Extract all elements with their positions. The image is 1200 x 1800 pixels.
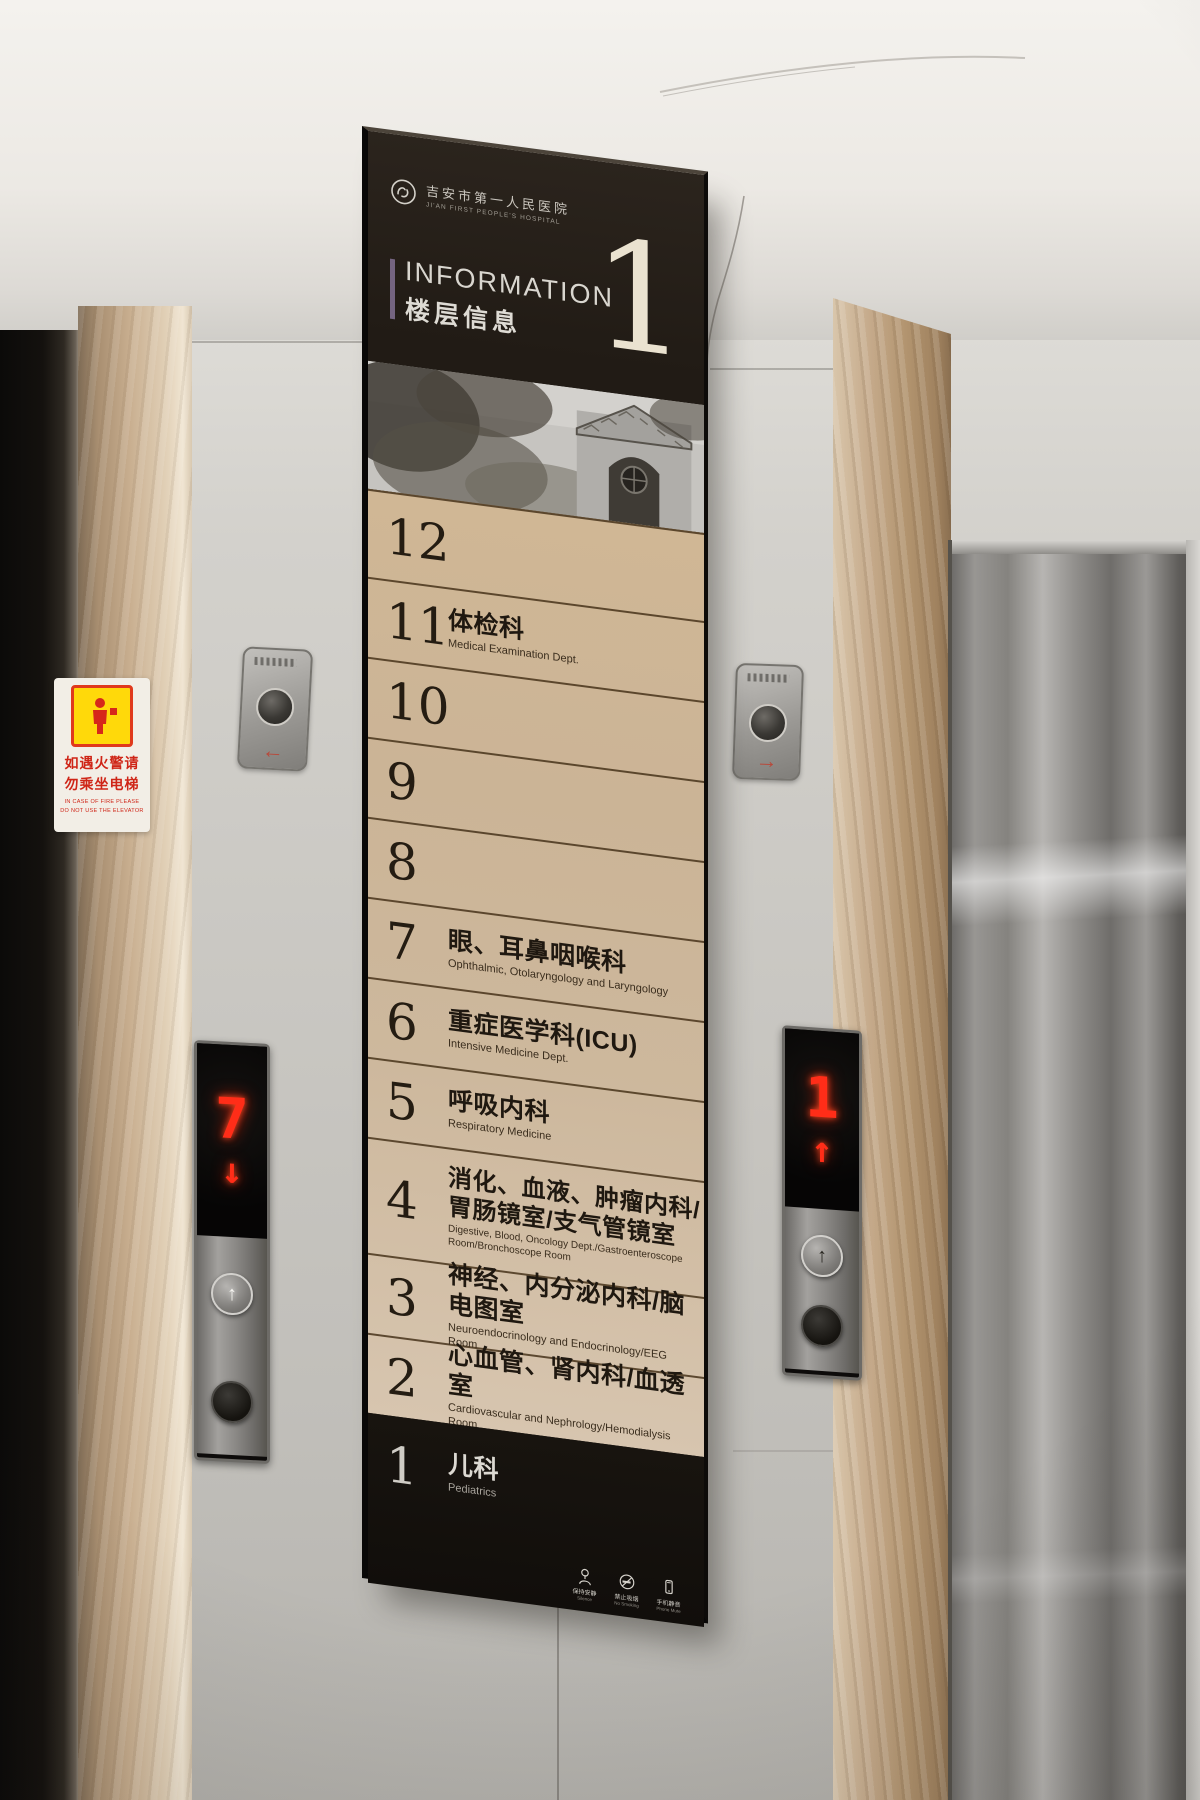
left-lower-button[interactable]: [211, 1380, 253, 1424]
left-call-up-button[interactable]: ↑: [211, 1272, 253, 1316]
hospital-logo-row: 吉安市第一人民医院 JI'AN FIRST PEOPLE'S HOSPITAL: [390, 176, 570, 228]
silence-icon: [576, 1566, 594, 1586]
engraved-label: [747, 673, 789, 682]
etiquette-silence: 保持安静 Silence: [571, 1566, 598, 1604]
fire-warning-text-line1: 如遇火警请: [54, 753, 150, 774]
door-reflection: [952, 833, 1200, 926]
red-arrow-mark: →: [755, 750, 778, 773]
floor-number: 6: [386, 995, 448, 1053]
door-top-edge: [952, 540, 1200, 554]
right-elevator-panel: 1 ↑ ↑: [782, 1025, 862, 1381]
no-smoking-icon: [618, 1572, 636, 1592]
left-floor-indicator: 7 ↓: [197, 1043, 267, 1239]
left-elevator-marble-frame: [78, 306, 192, 1800]
floor-number: 12: [386, 511, 448, 569]
floor-number: 3: [386, 1271, 448, 1329]
left-fire-intercom-plate: ←: [237, 646, 313, 771]
floor-number: 5: [386, 1075, 448, 1133]
fire-warning-pictogram: [71, 685, 133, 747]
current-floor-number: 1: [593, 218, 688, 381]
floor-number: 11: [386, 595, 448, 653]
right-indicator-floor: 1: [805, 1070, 839, 1128]
floor-number: 4: [386, 1173, 448, 1231]
intercom-button[interactable]: [255, 687, 295, 727]
right-fire-intercom-plate: →: [732, 663, 804, 781]
floor-number: 8: [386, 835, 448, 893]
door-reflection-low: [952, 1546, 1200, 1605]
left-elevator-panel: 7 ↓ ↑: [194, 1040, 270, 1464]
right-indicator-direction-up-icon: ↑: [811, 1132, 833, 1170]
floor-number: 7: [386, 915, 448, 973]
fire-warning-text-en2: DO NOT USE THE ELEVATOR: [54, 807, 150, 816]
fire-warning-text-en1: IN CASE OF FIRE PLEASE: [54, 798, 150, 807]
engraved-label: [254, 657, 296, 667]
floor-number: 2: [386, 1351, 448, 1409]
left-indicator-floor: 7: [215, 1091, 249, 1149]
left-elevator-shadow: [0, 330, 78, 1800]
floor-directory-sign: 吉安市第一人民医院 JI'AN FIRST PEOPLE'S HOSPITAL …: [362, 126, 708, 1624]
floor-number: 9: [386, 755, 448, 813]
title-accent-bar: [390, 259, 395, 320]
floor-number: 1: [386, 1439, 448, 1497]
red-arrow-mark: ←: [261, 739, 284, 762]
etiquette-no-smoking: 禁止吸烟 No Smoking: [613, 1571, 640, 1609]
right-elevator-steel-door: [948, 540, 1200, 1800]
door-frame-edge: [1186, 540, 1200, 1800]
left-indicator-direction-down-icon: ↓: [221, 1153, 243, 1190]
fire-warning-text-line2: 勿乘坐电梯: [54, 774, 150, 795]
wall-tile-seam: [557, 1600, 559, 1800]
sign-title-block: INFORMATION 楼层信息: [390, 254, 614, 353]
right-call-plate: ↑: [785, 1206, 859, 1373]
hospital-logo-icon: [390, 176, 417, 207]
fire-warning-sign: 如遇火警请 勿乘坐电梯 IN CASE OF FIRE PLEASE DO NO…: [54, 678, 150, 832]
left-call-plate: ↑: [197, 1235, 267, 1457]
scene-elevator-lobby: 如遇火警请 勿乘坐电梯 IN CASE OF FIRE PLEASE DO NO…: [0, 0, 1200, 1800]
floor-rows: 1211体检科Medical Examination Dept.10987眼、耳…: [368, 489, 704, 1457]
etiquette-phone-mute: 手机静音 Phone Mute: [655, 1577, 682, 1615]
phone-mute-icon: [660, 1577, 678, 1597]
right-lower-button[interactable]: [801, 1304, 843, 1349]
wall-tile-seam: [710, 368, 833, 370]
right-floor-indicator: 1 ↑: [785, 1028, 859, 1211]
intercom-button[interactable]: [748, 703, 787, 742]
wall-tile-seam: [733, 1450, 833, 1452]
person-icon: [80, 694, 124, 738]
dept-name-zh: 儿科: [448, 1449, 499, 1486]
wall-tile-seam: [192, 341, 362, 343]
etiquette-icons-row: 保持安静 Silence 禁止吸烟 No Smoking: [571, 1566, 682, 1615]
right-call-up-button[interactable]: ↑: [801, 1234, 843, 1279]
floor-number: 10: [386, 675, 448, 733]
